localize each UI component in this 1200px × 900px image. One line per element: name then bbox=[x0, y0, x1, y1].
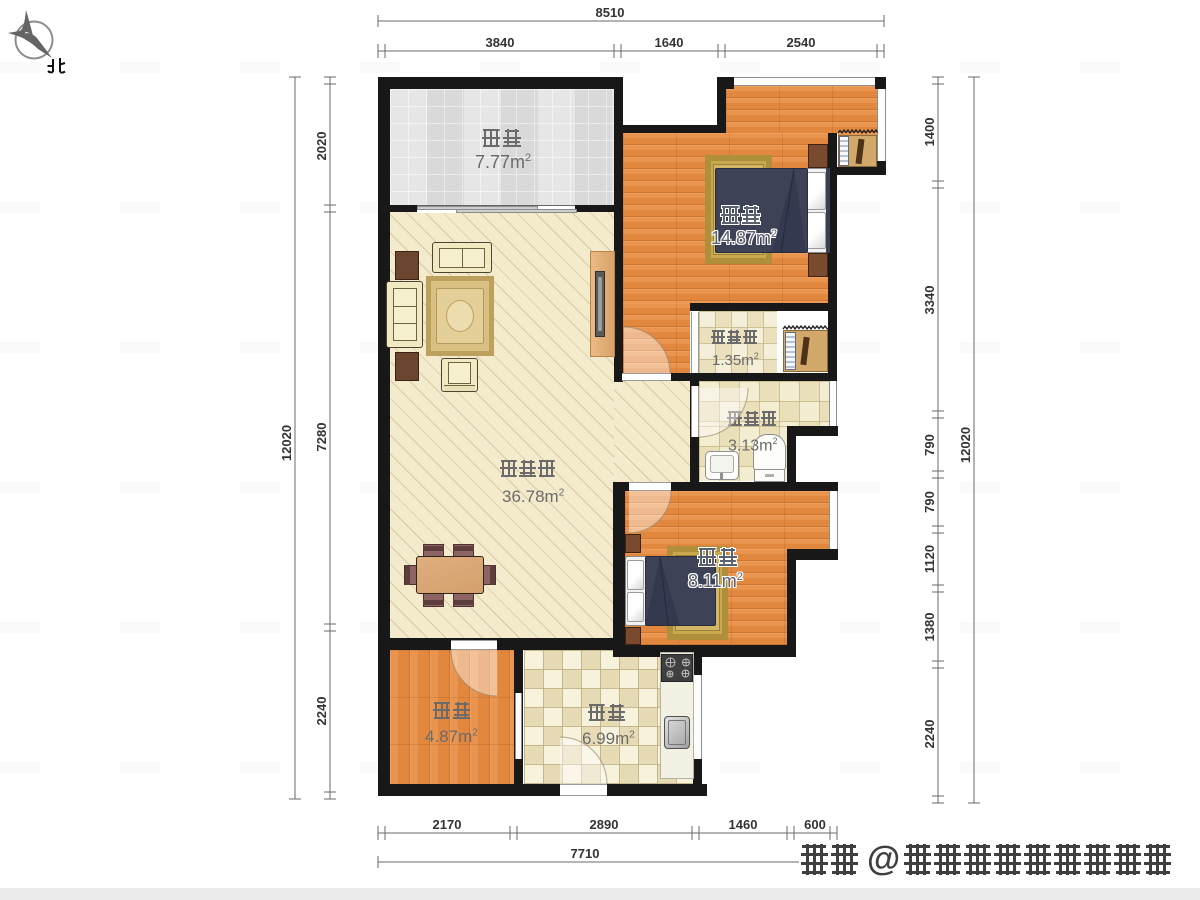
svg-text:2540: 2540 bbox=[787, 35, 816, 50]
svg-text:2170: 2170 bbox=[433, 817, 462, 832]
svg-text:7280: 7280 bbox=[314, 423, 329, 452]
svg-text:1400: 1400 bbox=[922, 118, 937, 147]
svg-text:12020: 12020 bbox=[279, 425, 294, 461]
svg-text:790: 790 bbox=[922, 434, 937, 456]
svg-text:600: 600 bbox=[804, 817, 826, 832]
svg-text:2020: 2020 bbox=[314, 132, 329, 161]
svg-text:790: 790 bbox=[922, 491, 937, 513]
svg-text:7710: 7710 bbox=[571, 846, 600, 861]
svg-text:2240: 2240 bbox=[922, 720, 937, 749]
svg-text:8510: 8510 bbox=[596, 5, 625, 20]
svg-text:1120: 1120 bbox=[922, 545, 937, 573]
svg-text:12020: 12020 bbox=[958, 427, 973, 463]
svg-text:2240: 2240 bbox=[314, 697, 329, 726]
svg-text:1460: 1460 bbox=[729, 817, 758, 832]
svg-text:1380: 1380 bbox=[922, 613, 937, 642]
svg-text:3340: 3340 bbox=[922, 286, 937, 315]
svg-text:2890: 2890 bbox=[590, 817, 619, 832]
svg-text:3840: 3840 bbox=[486, 35, 515, 50]
svg-text:1640: 1640 bbox=[655, 35, 684, 50]
